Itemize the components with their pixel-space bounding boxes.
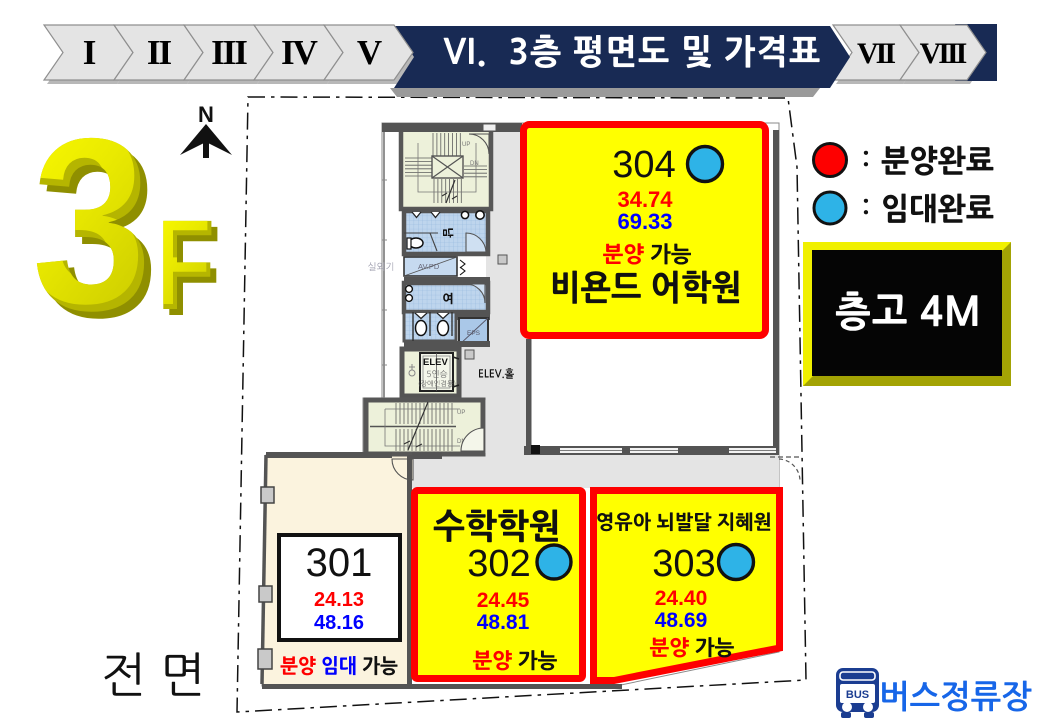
svg-text:24.13: 24.13 <box>314 589 364 611</box>
svg-text:ELEV: ELEV <box>423 357 448 368</box>
svg-text:III: III <box>211 33 247 72</box>
svg-text:VII: VII <box>857 37 895 70</box>
svg-text:AV.PD: AV.PD <box>418 262 440 271</box>
svg-text:UP: UP <box>462 142 470 148</box>
svg-text:I: I <box>83 33 96 72</box>
svg-text:BUS: BUS <box>846 689 869 701</box>
svg-text:302: 302 <box>467 543 530 585</box>
svg-text:DN: DN <box>470 161 479 167</box>
svg-text:V: V <box>357 33 382 72</box>
svg-text:IV: IV <box>281 33 318 72</box>
svg-text:301: 301 <box>306 541 373 585</box>
svg-text:48.81: 48.81 <box>477 611 530 634</box>
svg-text:24.40: 24.40 <box>655 587 708 610</box>
svg-text:II: II <box>147 33 172 72</box>
svg-text:304: 304 <box>612 144 675 186</box>
svg-text:VIII: VIII <box>920 37 967 70</box>
svg-text:EPS: EPS <box>467 330 481 337</box>
svg-text:48.16: 48.16 <box>314 612 364 634</box>
svg-text:24.45: 24.45 <box>477 589 530 612</box>
svg-text:N: N <box>198 102 214 127</box>
svg-text:48.69: 48.69 <box>655 609 708 632</box>
svg-text:UP: UP <box>457 410 465 416</box>
svg-text:303: 303 <box>652 543 715 585</box>
svg-text:69.33: 69.33 <box>617 209 672 234</box>
